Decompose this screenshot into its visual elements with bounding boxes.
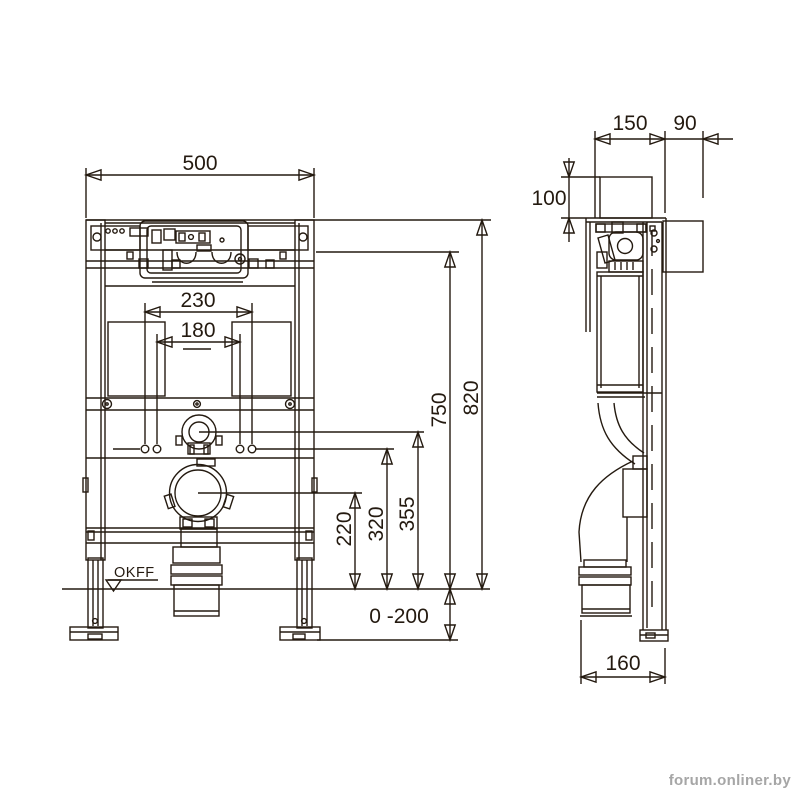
watermark: forum.onliner.by bbox=[669, 772, 791, 789]
dim-outlet-center-label: 220 bbox=[333, 511, 356, 546]
floor-reference: OKFF bbox=[62, 565, 490, 640]
side-view: 150 90 100 160 bbox=[531, 112, 733, 684]
drain-elbow bbox=[579, 461, 633, 562]
front-view: OKFF 500 230 180 bbox=[62, 152, 491, 640]
dim-outlet-offset-label: 160 bbox=[605, 652, 640, 675]
dim-fixing-bolt-height-label: 320 bbox=[365, 506, 388, 541]
dim-plate-shaft-height-label: 100 bbox=[531, 187, 566, 210]
dim-foot-adjustment-label: 0 -200 bbox=[369, 605, 429, 628]
dim-flush-pipe-center-label: 355 bbox=[396, 496, 419, 531]
floor-level-label: OKFF bbox=[114, 565, 155, 581]
dim-fixing-inner-label: 180 bbox=[180, 319, 215, 342]
front-drain-pipe bbox=[171, 529, 222, 616]
side-dimensions: 150 90 100 160 bbox=[531, 112, 733, 684]
dim-frame-depth-label: 150 bbox=[612, 112, 647, 135]
flush-bend-outer bbox=[598, 403, 635, 464]
dim-upper-fixing-height-label: 750 bbox=[428, 392, 451, 427]
rear-mounting-box bbox=[663, 221, 703, 272]
dim-overall-width-label: 500 bbox=[182, 152, 217, 175]
upper-rail bbox=[86, 398, 314, 410]
lower-rail bbox=[86, 528, 314, 543]
installation-frame-technical-drawing: OKFF 500 230 180 bbox=[0, 0, 800, 800]
dim-fixing-outer-label: 230 bbox=[180, 289, 215, 312]
dim-rear-clearance-label: 90 bbox=[673, 112, 696, 135]
side-drain bbox=[579, 403, 647, 616]
control-box bbox=[140, 221, 248, 282]
flush-bend-inner bbox=[614, 403, 644, 453]
drawing-svg: OKFF 500 230 180 bbox=[0, 0, 800, 800]
drain-connector bbox=[164, 465, 233, 530]
front-frame bbox=[86, 220, 314, 560]
flush-pipe-connector bbox=[86, 415, 314, 466]
flush-plate-shaft bbox=[600, 177, 652, 218]
dim-overall-height-label: 820 bbox=[460, 380, 483, 415]
cistern-tank bbox=[597, 272, 643, 392]
